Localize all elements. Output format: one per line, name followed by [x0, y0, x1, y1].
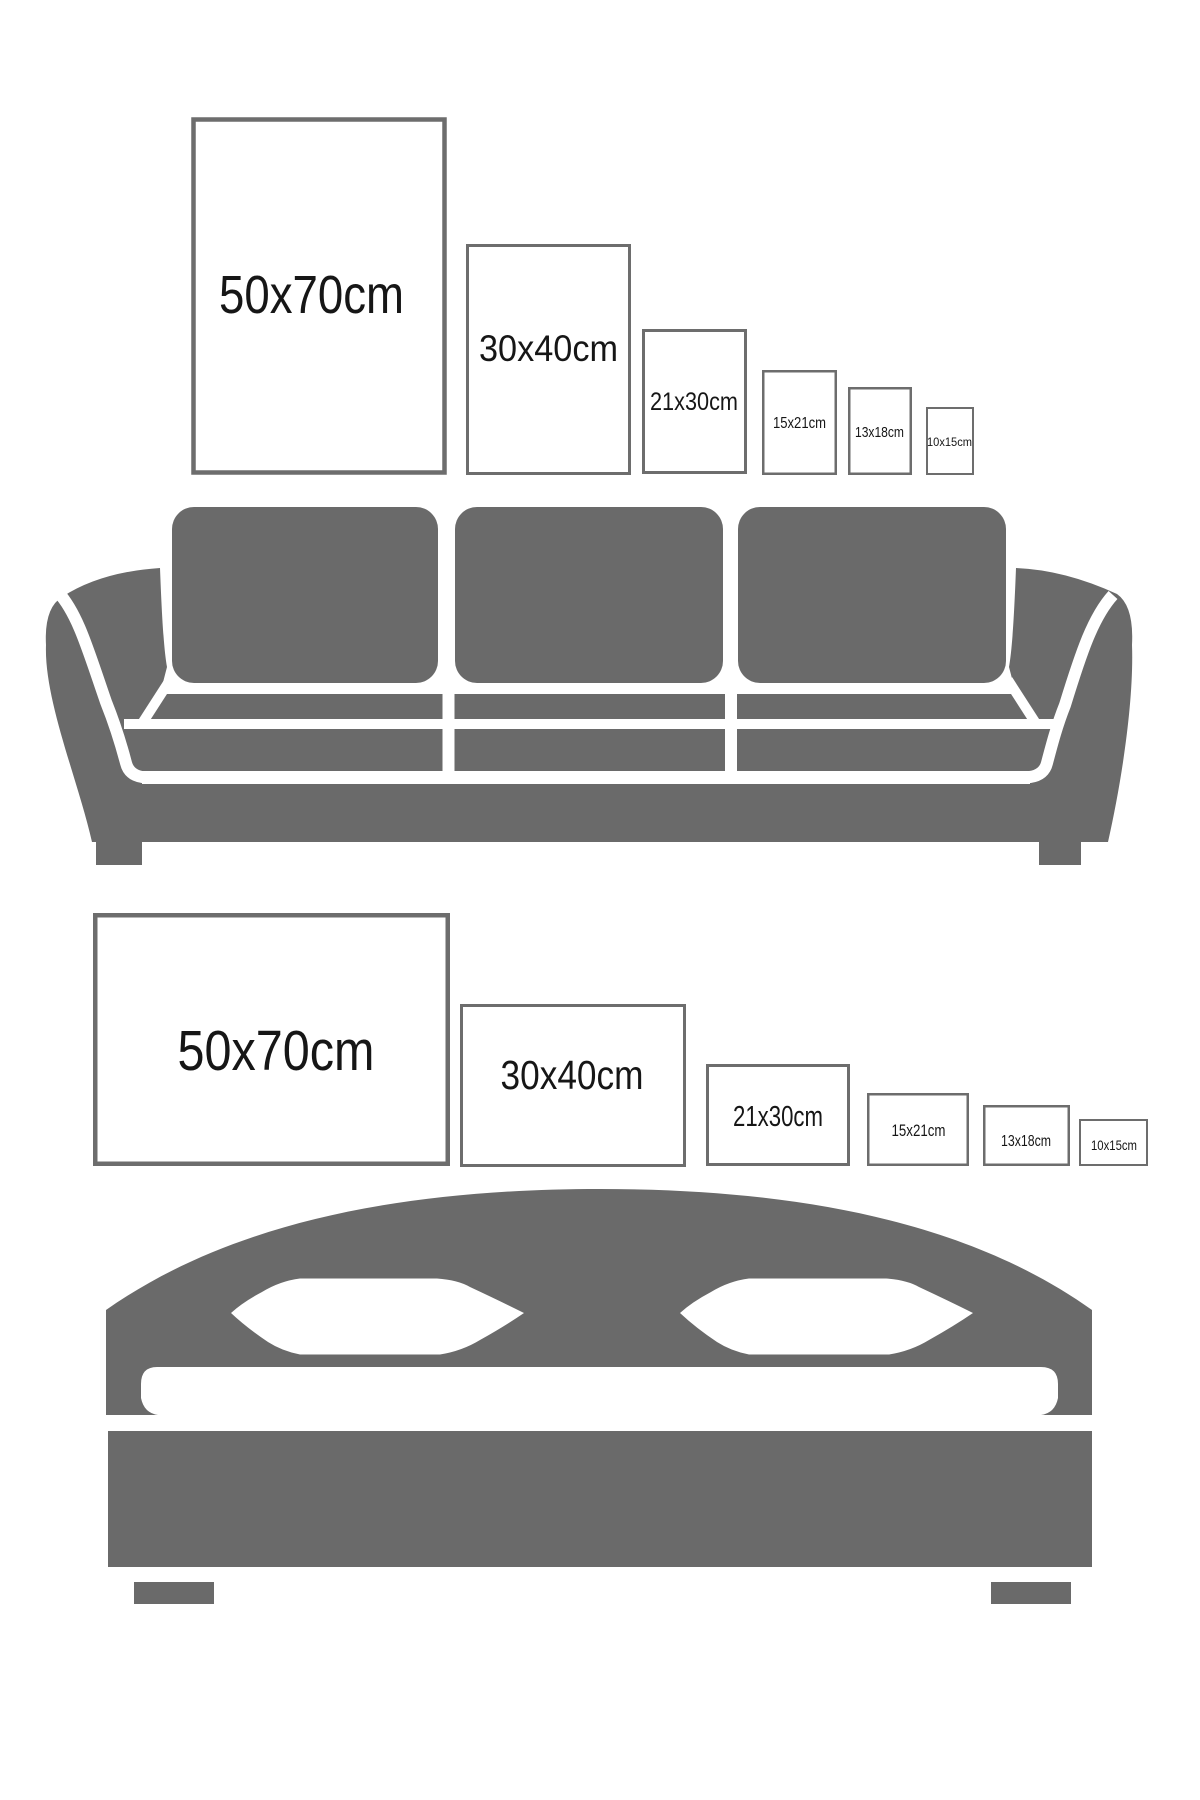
svg-text:30x40cm: 30x40cm [501, 1052, 644, 1098]
svg-text:15x21cm: 15x21cm [773, 415, 826, 432]
svg-text:21x30cm: 21x30cm [733, 1101, 823, 1133]
svg-text:13x18cm: 13x18cm [855, 424, 904, 441]
svg-text:10x15cm: 10x15cm [1091, 1138, 1137, 1153]
svg-text:13x18cm: 13x18cm [1001, 1133, 1051, 1150]
svg-text:30x40cm: 30x40cm [479, 328, 618, 369]
svg-text:10x15cm: 10x15cm [927, 435, 972, 449]
svg-text:21x30cm: 21x30cm [650, 388, 738, 416]
svg-text:15x21cm: 15x21cm [892, 1121, 946, 1140]
svg-text:50x70cm: 50x70cm [219, 265, 404, 325]
svg-text:50x70cm: 50x70cm [178, 1019, 375, 1083]
